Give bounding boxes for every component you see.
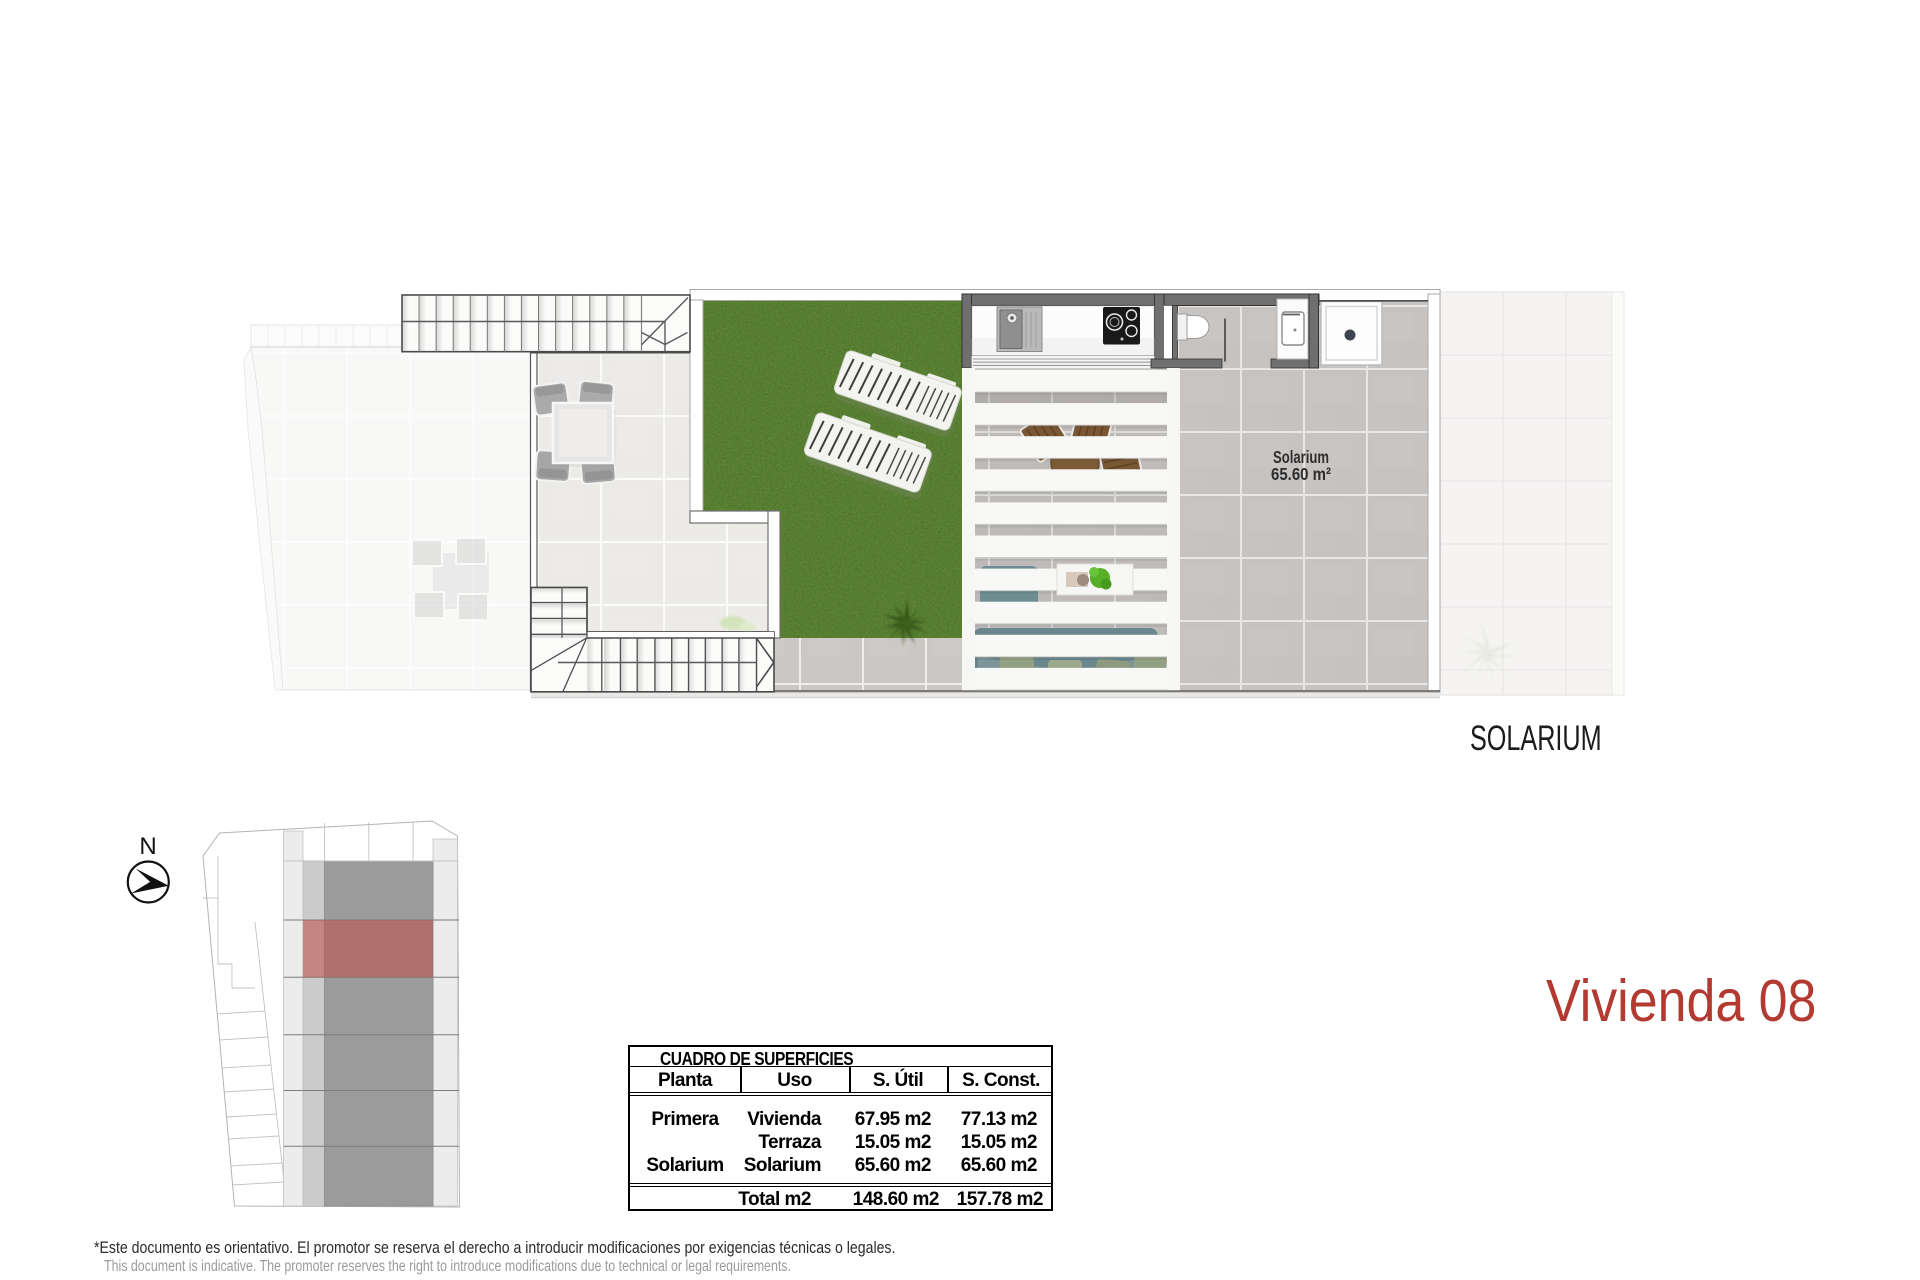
svg-text:N: N <box>139 833 156 860</box>
svg-text:65.60 m²: 65.60 m² <box>1271 464 1331 484</box>
